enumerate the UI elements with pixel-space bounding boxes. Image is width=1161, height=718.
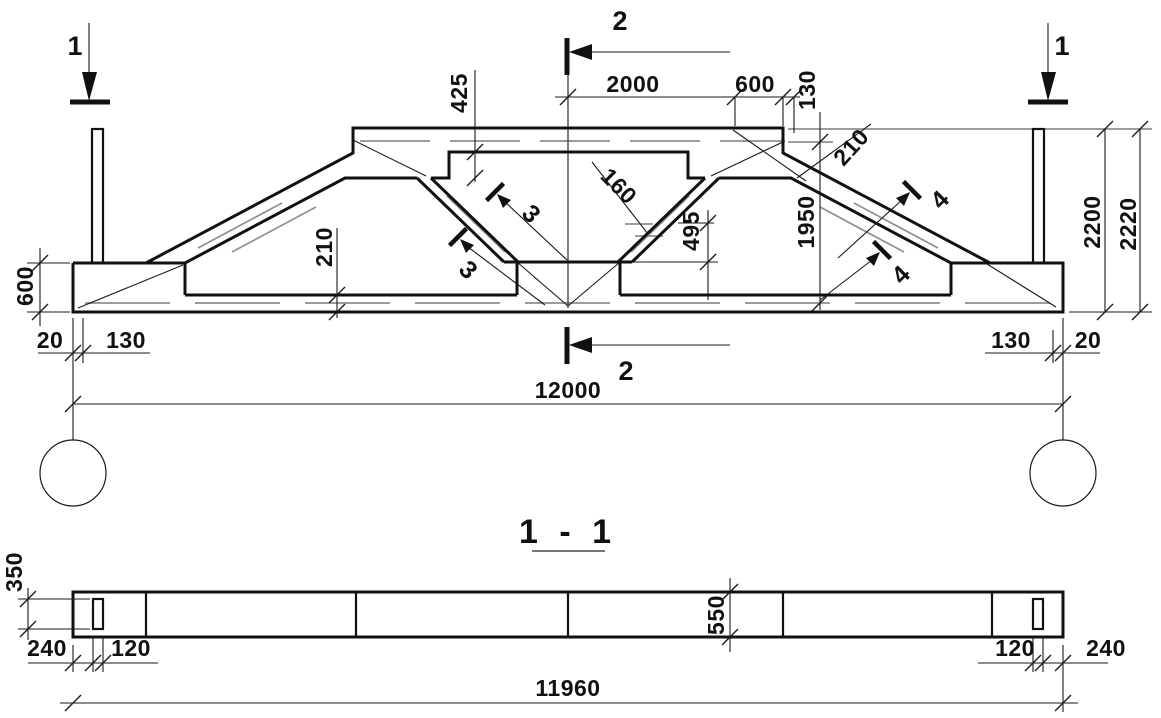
elevation-dimension-labels: 2000 600 130 425 160 495 1950 210 210 60…	[12, 70, 1141, 403]
dim-350: 350	[1, 552, 27, 592]
technical-drawing: 1 1 2 2 3 3 4	[0, 0, 1161, 718]
dim-495: 495	[678, 211, 704, 251]
support-mark-circle-right	[1030, 440, 1096, 506]
dim-600-left: 600	[12, 266, 38, 306]
dim-130-left: 130	[106, 327, 146, 353]
arrow-left-icon	[569, 337, 592, 353]
dim-20-left: 20	[37, 327, 64, 353]
dim-550: 550	[703, 595, 729, 635]
detail-label-3: 3	[516, 199, 546, 229]
section-1-1-view: 1 - 1 350 240 120 550 120	[1, 513, 1126, 712]
section-flag-1-right: 1	[1028, 31, 1070, 102]
cut-label-1-right: 1	[1054, 31, 1069, 61]
detail-label-3: 3	[453, 255, 483, 285]
detail-flag-4-upper: 4	[896, 182, 955, 215]
detail-flag-3-upper: 3	[487, 184, 546, 229]
dim-600-top: 600	[735, 71, 775, 97]
cut-label-2-top: 2	[612, 6, 627, 36]
dim-2220: 2220	[1115, 197, 1141, 250]
section-dimension-labels: 350 240 120 550 120 240 11960	[1, 552, 1126, 701]
dim-1950: 1950	[793, 195, 819, 248]
support-mark-circle-left	[40, 440, 106, 506]
arrow-up-right-icon	[866, 252, 880, 266]
arrow-down-icon	[1041, 72, 1056, 101]
detail-flag-4-lower: 4	[866, 242, 916, 290]
right-post	[1033, 129, 1044, 263]
dim-210-diagonal: 210	[828, 123, 874, 170]
arrow-down-icon	[82, 72, 97, 101]
dim-2200: 2200	[1079, 195, 1105, 248]
dim-240-right: 240	[1086, 635, 1126, 661]
detail-label-4: 4	[925, 185, 955, 215]
drawing-page: 1 1 2 2 3 3 4	[0, 0, 1161, 718]
right-anchor-hole	[1033, 599, 1043, 629]
girder-elevation: 1 1 2 2 3 3 4	[12, 6, 1152, 506]
dim-120-right: 120	[995, 635, 1035, 661]
detail-label-4: 4	[886, 260, 916, 290]
dim-130-right: 130	[991, 327, 1031, 353]
dim-120-left: 120	[111, 635, 151, 661]
cut-label-1-left: 1	[67, 31, 82, 61]
section-flag-2-top: 2	[567, 6, 628, 75]
dim-210-chord: 210	[311, 227, 337, 267]
arrow-left-icon	[569, 44, 592, 60]
dim-20-right: 20	[1075, 327, 1102, 353]
section-title: 1 - 1	[519, 513, 617, 551]
dim-11960: 11960	[535, 675, 600, 701]
cut-label-2-bottom: 2	[618, 356, 633, 386]
left-anchor-hole	[93, 599, 103, 629]
dim-2000: 2000	[606, 71, 659, 97]
dimension-ticks	[32, 89, 1148, 412]
dim-425: 425	[446, 73, 472, 113]
left-post	[92, 129, 103, 263]
dim-12000: 12000	[535, 377, 601, 403]
dim-240-left: 240	[27, 635, 67, 661]
dim-130-top: 130	[794, 70, 820, 110]
arrow-up-left-icon	[460, 239, 474, 253]
dim-160: 160	[596, 163, 643, 210]
beam-segment-joints	[146, 592, 992, 637]
